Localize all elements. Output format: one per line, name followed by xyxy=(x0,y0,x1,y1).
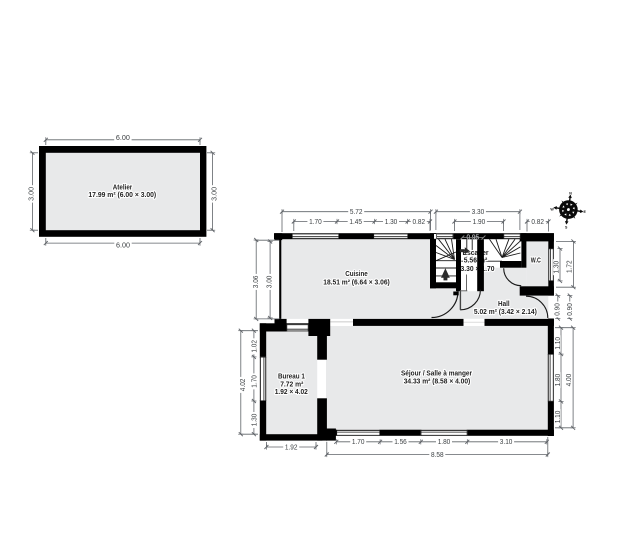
svg-text:1.80: 1.80 xyxy=(555,374,562,387)
svg-text:3.00: 3.00 xyxy=(267,276,274,289)
svg-text:0.90: 0.90 xyxy=(555,303,562,316)
svg-text:5.72: 5.72 xyxy=(350,209,363,216)
svg-text:1.02: 1.02 xyxy=(252,340,259,353)
svg-text:N: N xyxy=(569,192,572,196)
svg-text:1.92: 1.92 xyxy=(285,444,298,451)
svg-text:5.02 m² (3.42 × 2.14): 5.02 m² (3.42 × 2.14) xyxy=(474,309,537,316)
svg-text:6.00: 6.00 xyxy=(116,135,130,142)
svg-text:Cuisine: Cuisine xyxy=(345,271,368,278)
svg-text:34.33 m² (8.58 × 4.00): 34.33 m² (8.58 × 4.00) xyxy=(404,379,471,386)
svg-text:1.10: 1.10 xyxy=(555,337,562,350)
svg-text:W.C: W.C xyxy=(531,258,541,265)
svg-text:1.30: 1.30 xyxy=(385,219,398,226)
svg-text:Atelier: Atelier xyxy=(113,185,133,192)
svg-text:0.82: 0.82 xyxy=(413,219,426,226)
svg-text:1.45: 1.45 xyxy=(349,219,362,226)
svg-text:6.00: 6.00 xyxy=(116,242,130,249)
svg-text:1.30: 1.30 xyxy=(252,414,259,427)
svg-text:Bureau 1: Bureau 1 xyxy=(278,374,305,381)
svg-text:1.70: 1.70 xyxy=(309,219,322,226)
svg-text:0.90: 0.90 xyxy=(567,303,574,316)
svg-text:3.00: 3.00 xyxy=(28,187,35,201)
svg-text:1.10: 1.10 xyxy=(555,411,562,424)
svg-text:8.58: 8.58 xyxy=(431,452,444,459)
svg-text:17.99 m² (6.00 × 3.00): 17.99 m² (6.00 × 3.00) xyxy=(88,192,156,199)
svg-text:1.92 × 4.02: 1.92 × 4.02 xyxy=(275,389,308,396)
svg-text:1.90: 1.90 xyxy=(473,219,486,226)
svg-text:Hall: Hall xyxy=(498,301,510,308)
svg-text:1.72: 1.72 xyxy=(567,260,574,273)
svg-text:Séjour / Salle à manger: Séjour / Salle à manger xyxy=(401,371,472,378)
svg-text:1.70: 1.70 xyxy=(252,375,259,388)
svg-text:18.51 m² (6.64 × 3.06): 18.51 m² (6.64 × 3.06) xyxy=(323,279,390,286)
svg-text:1.70: 1.70 xyxy=(352,439,365,446)
svg-text:3.10: 3.10 xyxy=(500,439,513,446)
svg-text:3.00: 3.00 xyxy=(212,187,219,201)
svg-text:1.56: 1.56 xyxy=(394,439,407,446)
svg-text:5.56 m²: 5.56 m² xyxy=(464,258,488,265)
svg-text:4.02: 4.02 xyxy=(240,379,247,392)
svg-text:1.80: 1.80 xyxy=(438,439,451,446)
svg-text:0.95: 0.95 xyxy=(467,235,480,242)
svg-text:W: W xyxy=(550,207,554,211)
svg-text:4.00: 4.00 xyxy=(566,374,573,387)
svg-text:1.30: 1.30 xyxy=(554,261,561,274)
svg-text:3.30: 3.30 xyxy=(472,209,485,216)
svg-text:7.72 m²: 7.72 m² xyxy=(280,381,304,388)
svg-text:0.82: 0.82 xyxy=(531,219,544,226)
svg-text:3.06: 3.06 xyxy=(253,276,260,289)
